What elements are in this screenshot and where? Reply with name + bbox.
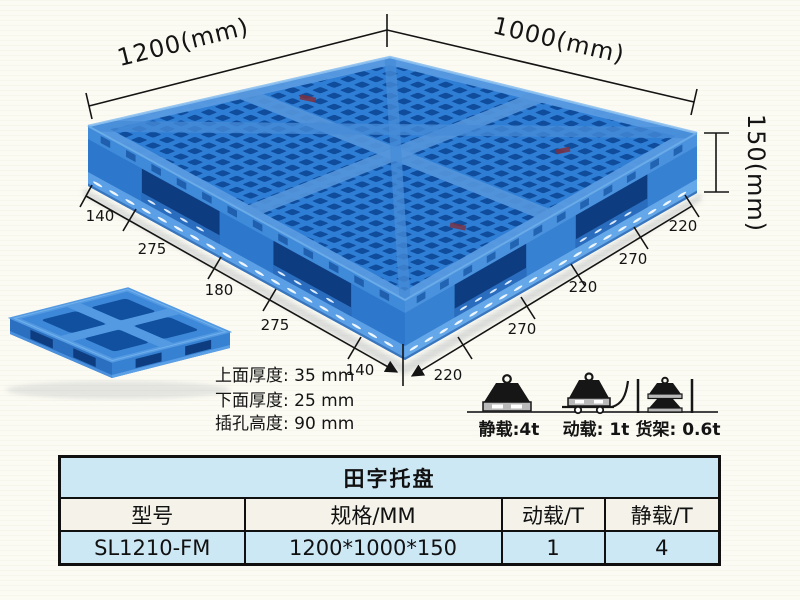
segment-label: 180 (205, 281, 234, 299)
dynamic-load-trolley-icon (562, 374, 628, 414)
dim-label-150: 150(mm) (742, 114, 770, 232)
segment-label: 220 (669, 217, 698, 235)
header-spec: 规格/MM (245, 498, 502, 531)
dim-label-1200: 1200(mm) (114, 12, 251, 72)
thickness-notes: 上面厚度: 35 mm 下面厚度: 25 mm 插孔高度: 90 mm (215, 366, 354, 434)
segment-label: 140 (86, 207, 115, 225)
note-bottom-thickness: 下面厚度: 25 mm (215, 391, 354, 411)
header-static-load: 静载/T (605, 498, 720, 531)
dynamic-load-label: 动载: 1t (563, 419, 630, 440)
cell-model: SL1210-FM (60, 531, 245, 565)
note-top-thickness: 上面厚度: 35 mm (215, 366, 354, 386)
segment-label: 275 (261, 316, 290, 334)
table-row: SL1210-FM 1200*1000*150 1 4 (60, 531, 720, 565)
segment-label: 270 (508, 320, 537, 338)
dim-label-1000: 1000(mm) (490, 11, 627, 69)
spec-table: 田字托盘 型号 规格/MM 动载/T 静载/T SL1210-FM 1200*1… (58, 455, 721, 566)
segment-label: 270 (619, 250, 648, 268)
table-title: 田字托盘 (60, 457, 720, 499)
table-header-row: 型号 规格/MM 动载/T 静载/T (60, 498, 720, 531)
static-load-weight-icon (483, 375, 531, 411)
cell-static-load: 4 (605, 531, 720, 565)
load-capacity-icons: 静载:4t 动载: 1t 货架: 0.6t (467, 374, 720, 441)
small-pallet (6, 288, 230, 399)
header-model: 型号 (60, 498, 245, 531)
header-dynamic-load: 动载/T (502, 498, 605, 531)
product-sheet: 1200(mm) 1000(mm) 150(mm) 140 275 180 27… (0, 0, 800, 600)
rack-load-icon (638, 378, 692, 413)
table-title-row: 田字托盘 (60, 457, 720, 499)
segment-label: 275 (138, 240, 167, 258)
cell-spec: 1200*1000*150 (245, 531, 502, 565)
cell-dynamic-load: 1 (502, 531, 605, 565)
segment-label: 220 (569, 278, 598, 296)
note-fork-height: 插孔高度: 90 mm (215, 414, 354, 434)
static-load-label: 静载:4t (479, 419, 540, 440)
pallet-illustration: 1200(mm) 1000(mm) 150(mm) 140 275 180 27… (0, 0, 800, 455)
segment-label: 220 (434, 366, 463, 384)
rack-load-label: 货架: 0.6t (636, 419, 721, 440)
